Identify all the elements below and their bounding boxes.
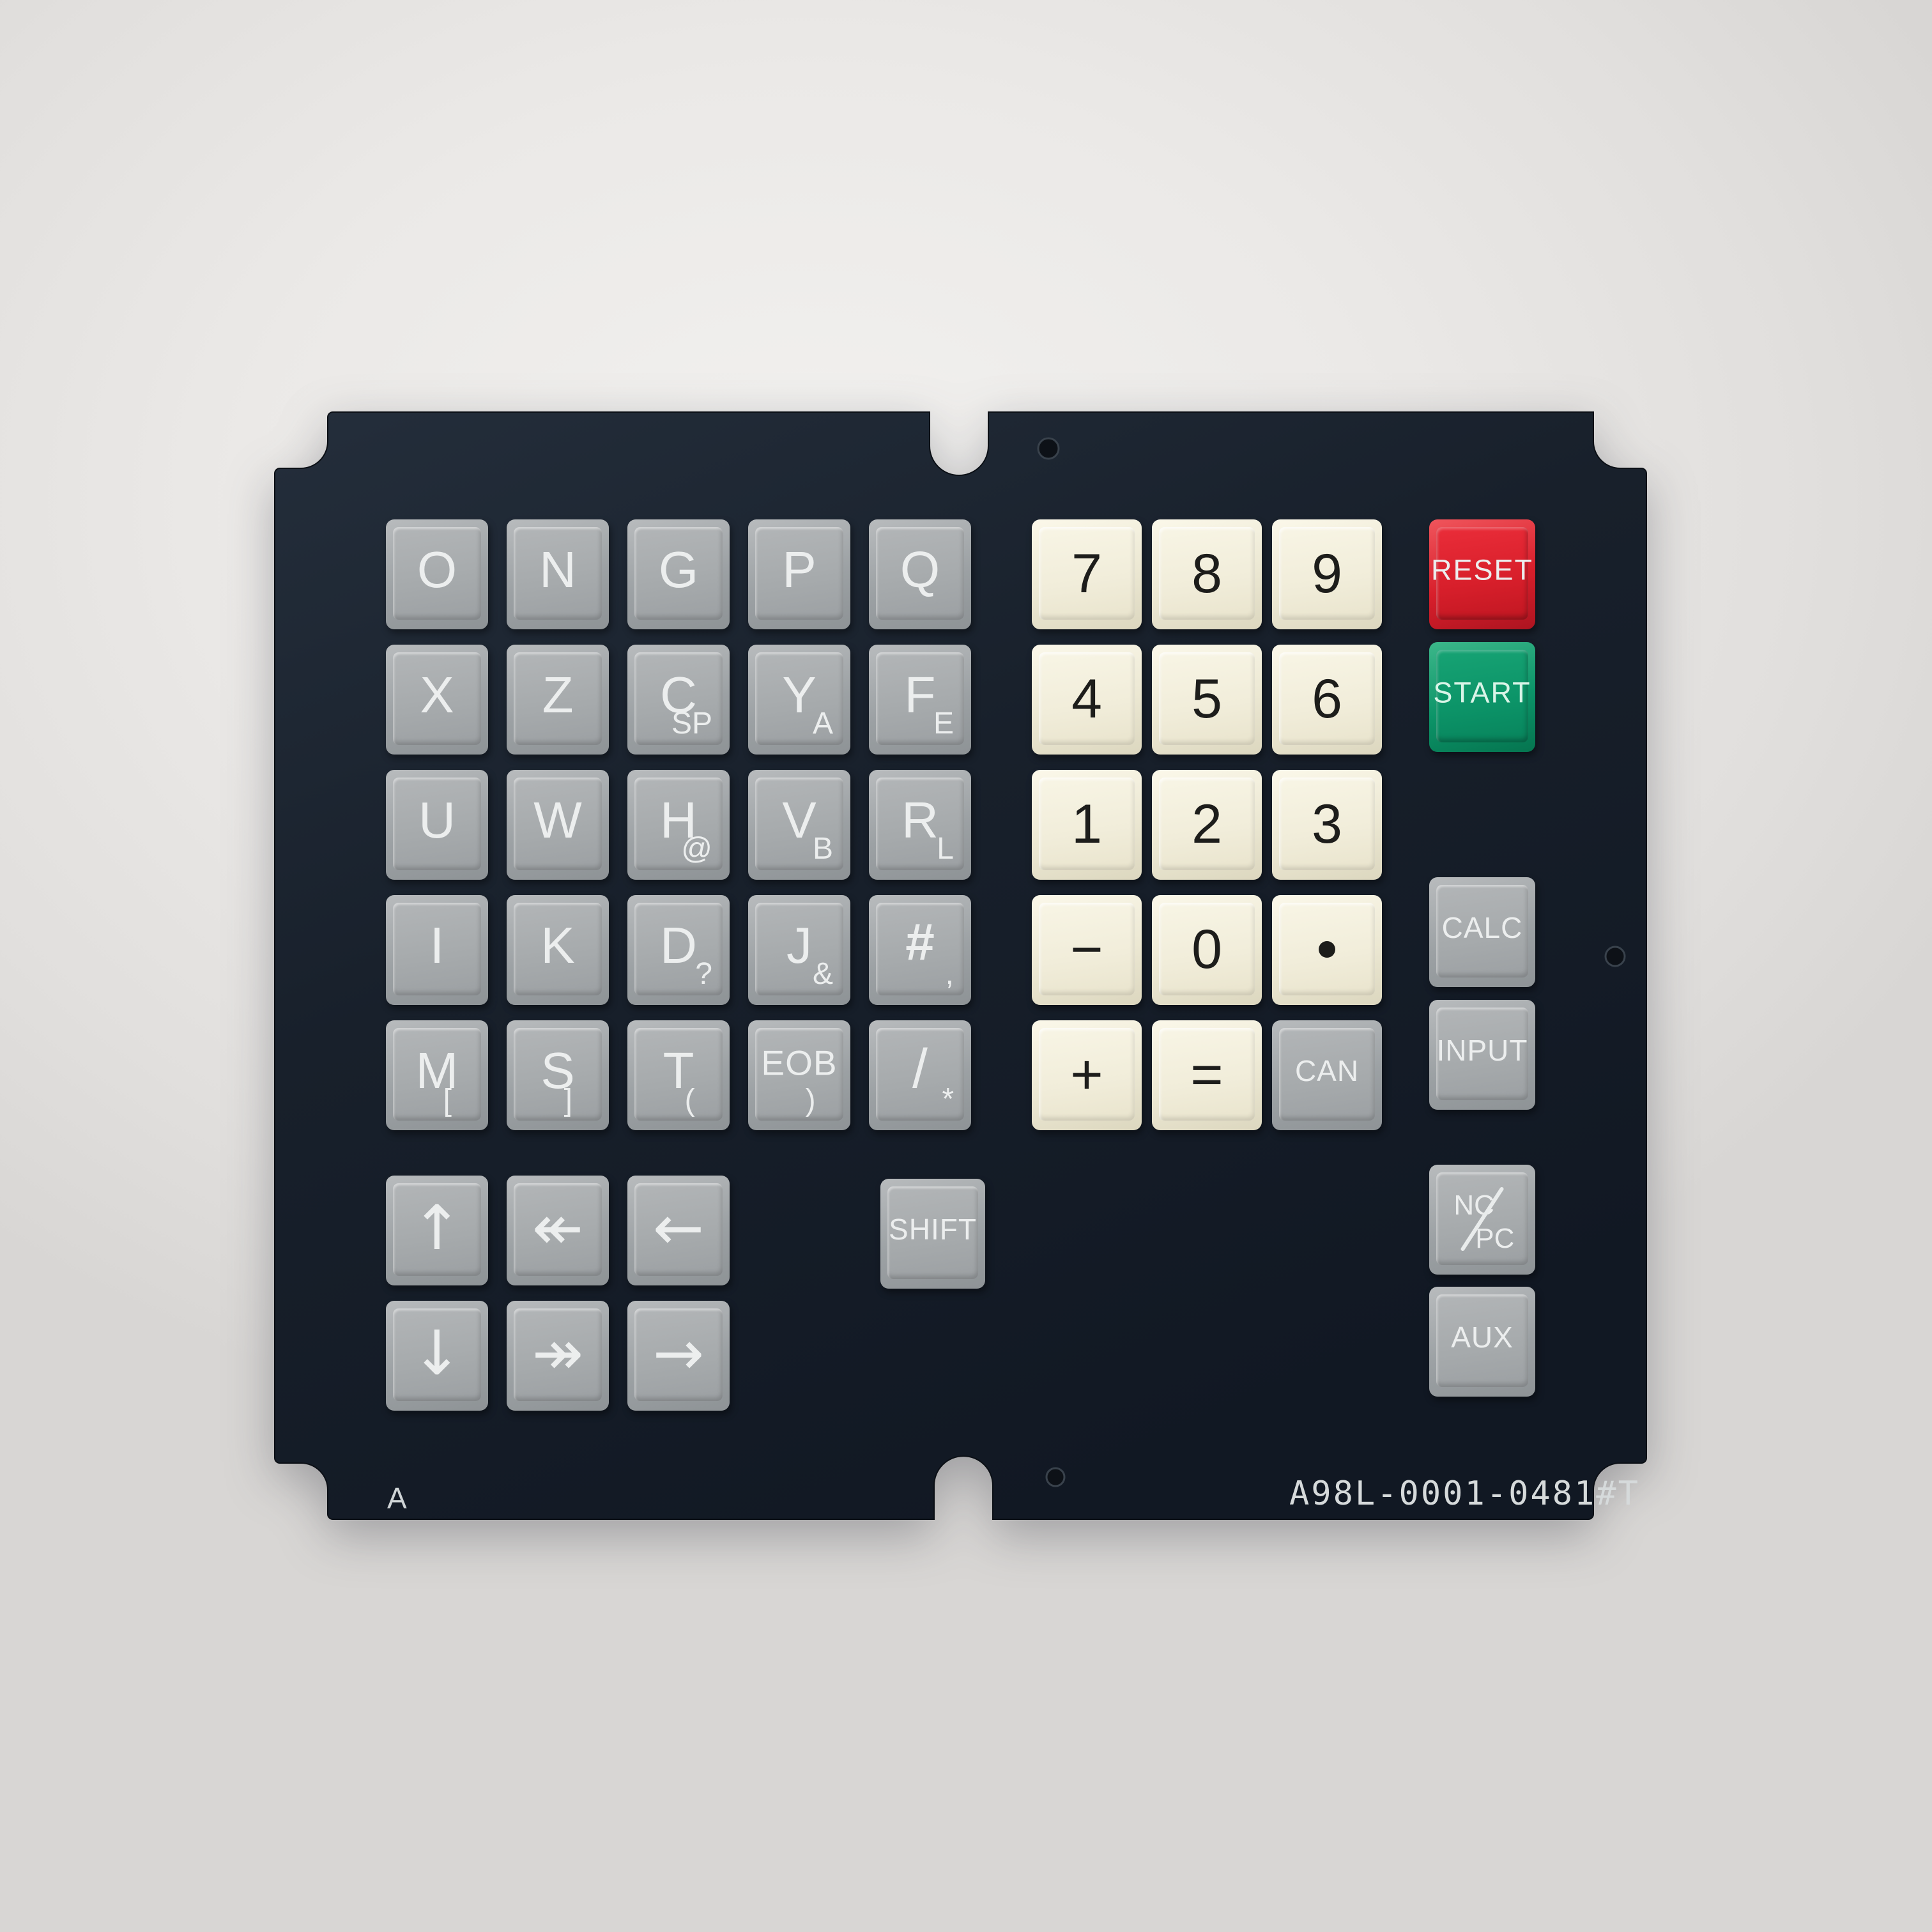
key-slash[interactable]: /* <box>869 1020 971 1130</box>
key-6-cap: 6 <box>1279 652 1375 745</box>
key-2[interactable]: 2 <box>1152 770 1262 880</box>
key-m-cap: M[ <box>393 1028 481 1121</box>
key-h[interactable]: H@ <box>627 770 730 880</box>
key-reset-label: RESET <box>1431 555 1533 584</box>
key-k-cap: K <box>514 903 602 995</box>
key-slash-label: / <box>912 1041 928 1096</box>
key-q[interactable]: Q <box>869 519 971 629</box>
key-7-label: 7 <box>1071 546 1102 601</box>
key-n[interactable]: N <box>507 519 609 629</box>
key-7[interactable]: 7 <box>1032 519 1142 629</box>
key-z-label: Z <box>542 670 574 721</box>
key-equals[interactable]: = <box>1152 1020 1262 1130</box>
key-arrow-left-label: ← <box>653 1197 704 1259</box>
key-input-label: INPUT <box>1437 1036 1528 1065</box>
key-layer: ONGPQXZCSPYAFEUWH@VBRLIKD?J&#,M[S]T(EOB)… <box>0 0 1932 1932</box>
key-u[interactable]: U <box>386 770 488 880</box>
key-nc-pc-cap: NCPC <box>1436 1172 1528 1265</box>
key-x[interactable]: X <box>386 645 488 755</box>
key-shift-cap: SHIFT <box>887 1186 978 1279</box>
key-0-label: 0 <box>1192 922 1222 977</box>
key-start[interactable]: START <box>1429 642 1535 752</box>
key-arrow-up-cap: ↑ <box>393 1183 481 1276</box>
key-arrow-down-label: ↓ <box>411 1322 463 1384</box>
key-m-sublabel: [ <box>443 1085 452 1116</box>
key-s-sublabel: ] <box>564 1085 572 1116</box>
key-y[interactable]: YA <box>748 645 850 755</box>
key-arrow-left[interactable]: ← <box>627 1176 730 1285</box>
key-y-cap: YA <box>755 652 843 745</box>
key-j-label: J <box>786 920 812 971</box>
key-v-sublabel: B <box>813 834 833 864</box>
key-2-cap: 2 <box>1159 778 1255 870</box>
key-r-sublabel: L <box>937 834 954 864</box>
key-6-label: 6 <box>1312 671 1342 726</box>
key-7-cap: 7 <box>1039 527 1135 620</box>
key-plus-label: + <box>1070 1046 1103 1103</box>
photo-backdrop: ONGPQXZCSPYAFEUWH@VBRLIKD?J&#,M[S]T(EOB)… <box>0 0 1932 1932</box>
key-p-cap: P <box>755 527 843 620</box>
key-m-label: M <box>416 1045 459 1096</box>
key-y-label: Y <box>782 670 816 721</box>
key-hash-sublabel: , <box>946 959 954 990</box>
key-v-cap: VB <box>755 778 843 870</box>
key-9-label: 9 <box>1312 546 1342 601</box>
key-can[interactable]: CAN <box>1272 1020 1382 1130</box>
key-arrow-right-cap: → <box>634 1308 723 1401</box>
key-i-cap: I <box>393 903 481 995</box>
key-arrow-right[interactable]: → <box>627 1301 730 1411</box>
key-9[interactable]: 9 <box>1272 519 1382 629</box>
key-g[interactable]: G <box>627 519 730 629</box>
key-i[interactable]: I <box>386 895 488 1005</box>
key-arrow-left-double[interactable]: ↞ <box>507 1176 609 1285</box>
key-1-cap: 1 <box>1039 778 1135 870</box>
key-arrow-up-label: ↑ <box>411 1197 463 1259</box>
key-f[interactable]: FE <box>869 645 971 755</box>
decimal-dot-glyph <box>1319 941 1335 958</box>
key-aux-cap: AUX <box>1436 1294 1528 1387</box>
key-input-cap: INPUT <box>1436 1008 1528 1100</box>
key-g-cap: G <box>634 527 723 620</box>
key-start-label: START <box>1433 678 1531 707</box>
key-6[interactable]: 6 <box>1272 645 1382 755</box>
key-hash-label: # <box>905 916 935 969</box>
key-3[interactable]: 3 <box>1272 770 1382 880</box>
key-j-sublabel: & <box>813 959 833 990</box>
key-plus-cap: + <box>1039 1028 1135 1121</box>
key-d-label: D <box>660 920 697 971</box>
key-t-sublabel: ( <box>685 1085 695 1116</box>
key-t[interactable]: T( <box>627 1020 730 1130</box>
key-arrow-left-cap: ← <box>634 1183 723 1276</box>
key-q-cap: Q <box>876 527 964 620</box>
key-d[interactable]: D? <box>627 895 730 1005</box>
key-decimal-point[interactable] <box>1272 895 1382 1005</box>
key-z[interactable]: Z <box>507 645 609 755</box>
key-c[interactable]: CSP <box>627 645 730 755</box>
key-j-cap: J& <box>755 903 843 995</box>
key-3-cap: 3 <box>1279 778 1375 870</box>
key-w-label: W <box>533 795 582 846</box>
key-plus[interactable]: + <box>1032 1020 1142 1130</box>
key-arrow-right-double-cap: ↠ <box>514 1308 602 1401</box>
key-decimal-point-cap <box>1279 903 1375 995</box>
key-8[interactable]: 8 <box>1152 519 1262 629</box>
key-hash-cap: #, <box>876 903 964 995</box>
key-eob[interactable]: EOB) <box>748 1020 850 1130</box>
key-n-label: N <box>539 544 576 595</box>
key-0-cap: 0 <box>1159 903 1255 995</box>
key-c-sublabel: SP <box>671 709 712 739</box>
key-start-cap: START <box>1436 650 1528 742</box>
key-o[interactable]: O <box>386 519 488 629</box>
key-aux[interactable]: AUX <box>1429 1287 1535 1397</box>
key-h-cap: H@ <box>634 778 723 870</box>
key-k-label: K <box>540 920 574 971</box>
key-u-cap: U <box>393 778 481 870</box>
key-5[interactable]: 5 <box>1152 645 1262 755</box>
key-input[interactable]: INPUT <box>1429 1000 1535 1110</box>
key-hash[interactable]: #, <box>869 895 971 1005</box>
key-k[interactable]: K <box>507 895 609 1005</box>
key-w[interactable]: W <box>507 770 609 880</box>
key-minus[interactable]: − <box>1032 895 1142 1005</box>
key-shift[interactable]: SHIFT <box>880 1179 985 1289</box>
key-u-label: U <box>418 795 456 846</box>
key-s[interactable]: S] <box>507 1020 609 1130</box>
key-f-sublabel: E <box>933 709 954 739</box>
key-can-cap: CAN <box>1279 1028 1375 1121</box>
key-3-label: 3 <box>1312 797 1342 852</box>
key-d-cap: D? <box>634 903 723 995</box>
key-arrow-right-double[interactable]: ↠ <box>507 1301 609 1411</box>
key-5-label: 5 <box>1192 671 1222 726</box>
key-x-label: X <box>420 670 454 721</box>
key-o-cap: O <box>393 527 481 620</box>
key-arrow-up[interactable]: ↑ <box>386 1176 488 1285</box>
key-arrow-right-double-label: ↠ <box>532 1322 583 1384</box>
key-shift-label: SHIFT <box>889 1215 977 1244</box>
key-y-sublabel: A <box>813 709 833 739</box>
key-w-cap: W <box>514 778 602 870</box>
key-9-cap: 9 <box>1279 527 1375 620</box>
key-eob-label: EOB <box>761 1046 837 1081</box>
key-r-label: R <box>901 795 939 846</box>
key-eob-sublabel: ) <box>806 1085 816 1116</box>
key-arrow-right-label: → <box>653 1322 704 1384</box>
key-g-label: G <box>659 544 698 595</box>
key-8-cap: 8 <box>1159 527 1255 620</box>
key-aux-label: AUX <box>1451 1322 1514 1352</box>
key-0[interactable]: 0 <box>1152 895 1262 1005</box>
key-eob-cap: EOB) <box>755 1028 843 1121</box>
key-q-label: Q <box>900 544 940 595</box>
key-x-cap: X <box>393 652 481 745</box>
key-can-label: CAN <box>1295 1056 1359 1085</box>
key-slash-cap: /* <box>876 1028 964 1121</box>
key-reset[interactable]: RESET <box>1429 519 1535 629</box>
key-arrow-left-double-cap: ↞ <box>514 1183 602 1276</box>
key-minus-cap: − <box>1039 903 1135 995</box>
key-reset-cap: RESET <box>1436 527 1528 620</box>
key-4[interactable]: 4 <box>1032 645 1142 755</box>
key-equals-cap: = <box>1159 1028 1255 1121</box>
key-o-label: O <box>417 544 457 595</box>
key-8-label: 8 <box>1192 546 1222 601</box>
key-n-cap: N <box>514 527 602 620</box>
key-f-cap: FE <box>876 652 964 745</box>
key-t-cap: T( <box>634 1028 723 1121</box>
key-d-sublabel: ? <box>695 959 712 990</box>
key-v-label: V <box>782 795 816 846</box>
key-r[interactable]: RL <box>869 770 971 880</box>
key-v[interactable]: VB <box>748 770 850 880</box>
pc-label: PC <box>1475 1225 1514 1253</box>
key-2-label: 2 <box>1192 797 1222 852</box>
key-5-cap: 5 <box>1159 652 1255 745</box>
key-m[interactable]: M[ <box>386 1020 488 1130</box>
part-number-label: A98L-0001-0481#T <box>1289 1477 1640 1510</box>
key-c-cap: CSP <box>634 652 723 745</box>
key-equals-label: = <box>1190 1046 1223 1103</box>
key-1[interactable]: 1 <box>1032 770 1142 880</box>
key-minus-label: − <box>1070 921 1103 977</box>
key-i-label: I <box>430 920 444 971</box>
key-arrow-down[interactable]: ↓ <box>386 1301 488 1411</box>
key-arrow-left-double-label: ↞ <box>532 1197 583 1259</box>
key-calc[interactable]: CALC <box>1429 877 1535 987</box>
key-4-cap: 4 <box>1039 652 1135 745</box>
revision-mark: A <box>387 1483 407 1513</box>
key-r-cap: RL <box>876 778 964 870</box>
key-p[interactable]: P <box>748 519 850 629</box>
key-f-label: F <box>905 670 936 721</box>
key-calc-label: CALC <box>1442 913 1523 942</box>
key-1-label: 1 <box>1071 797 1102 852</box>
key-calc-cap: CALC <box>1436 885 1528 977</box>
key-h-sublabel: @ <box>681 834 712 864</box>
key-arrow-down-cap: ↓ <box>393 1308 481 1401</box>
key-4-label: 4 <box>1071 671 1102 726</box>
key-j[interactable]: J& <box>748 895 850 1005</box>
key-z-cap: Z <box>514 652 602 745</box>
key-nc-pc[interactable]: NCPC <box>1429 1165 1535 1275</box>
key-s-cap: S] <box>514 1028 602 1121</box>
key-p-label: P <box>782 544 816 595</box>
key-slash-sublabel: * <box>942 1084 954 1115</box>
